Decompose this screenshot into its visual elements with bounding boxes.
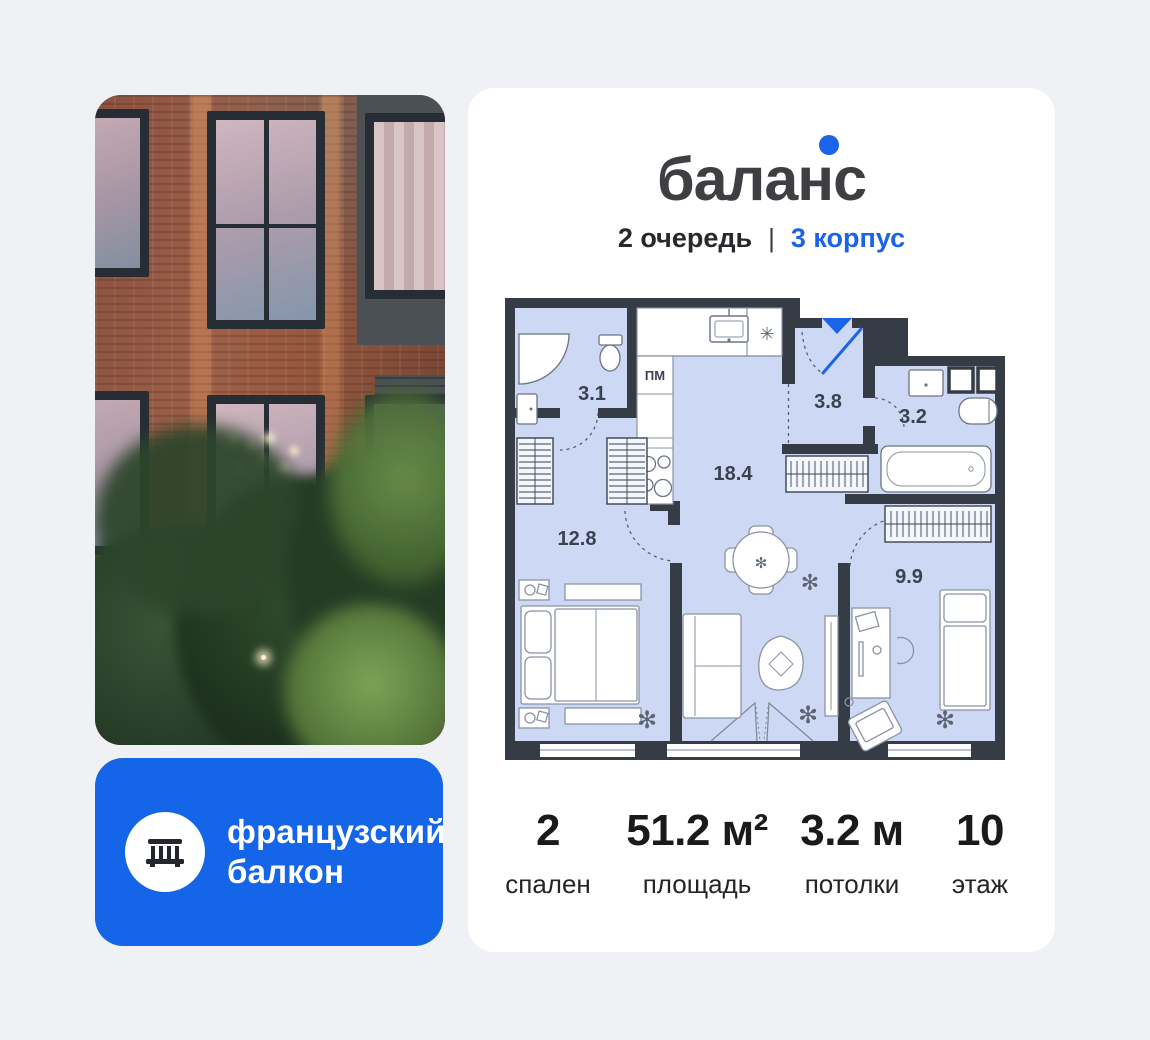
stat-area-label: площадь [626, 869, 768, 900]
stat-ceilings-label: потолки [800, 869, 903, 900]
stat-ceilings: 3.2 м потолки [800, 806, 903, 900]
apartment-card[interactable]: баланс 2 очередь | 3 корпус [468, 88, 1055, 952]
project-logo: баланс [657, 144, 866, 214]
window-top-left [95, 109, 149, 277]
stat-floor: 10 этаж [952, 806, 1008, 900]
svg-text:✻: ✻ [798, 702, 818, 729]
stat-bedrooms-value: 2 [505, 806, 591, 856]
area-kitchen-living: 18.4 [714, 463, 754, 485]
window-top-right-curtain [365, 113, 445, 299]
svg-text:✻: ✻ [935, 707, 955, 734]
logo-dot [819, 135, 839, 155]
badge-label-line2: балкон [227, 852, 446, 892]
svg-text:✻: ✻ [801, 570, 819, 595]
stat-floor-value: 10 [952, 806, 1008, 856]
area-bathroom1: 3.1 [578, 383, 606, 405]
listing-screenshot: { "page": {"background": "#eff1f5"}, "ph… [0, 0, 1150, 1040]
area-hallway: 3.8 [814, 391, 842, 413]
stat-ceilings-value: 3.2 м [800, 806, 903, 856]
logo-text: баланс [657, 145, 866, 213]
phase-label: 2 очередь [618, 223, 752, 254]
building-label: 3 корпус [791, 223, 905, 254]
area-bedroom1: 12.8 [558, 528, 597, 550]
foliage [95, 425, 305, 615]
badge-icon-circle [125, 812, 205, 892]
area-bathroom2: 3.2 [899, 406, 927, 428]
stat-bedrooms-label: спален [505, 869, 591, 900]
stat-bedrooms: 2 спален [505, 806, 591, 900]
dishwasher-label: ПМ [645, 368, 665, 383]
feature-badge-french-balcony: французский балкон [95, 758, 443, 946]
window-mullion [264, 120, 269, 320]
corridor-closet [786, 456, 868, 492]
stat-area-value: 51.2 м² [626, 806, 768, 856]
french-balcony-rail [216, 224, 316, 228]
fridge-icon: ✳ [759, 324, 774, 344]
light-through-tree [261, 655, 266, 660]
stat-floor-label: этаж [952, 869, 1008, 900]
badge-label: французский балкон [227, 812, 446, 893]
building-photo[interactable] [95, 95, 445, 745]
badge-label-line1: французский [227, 812, 446, 852]
svg-text:✻: ✻ [755, 555, 768, 572]
area-bedroom2: 9.9 [895, 566, 923, 588]
window-top-center [207, 111, 325, 329]
svg-text:✻: ✻ [637, 707, 657, 734]
balcony-railing-icon [143, 830, 187, 874]
bedroom2-closet [885, 506, 991, 542]
project-subtitle: 2 очередь | 3 корпус [468, 223, 1055, 254]
floor-plan: ✳ ПМ [505, 298, 1005, 762]
subtitle-divider: | [768, 223, 775, 254]
stat-area: 51.2 м² площадь [626, 806, 768, 900]
